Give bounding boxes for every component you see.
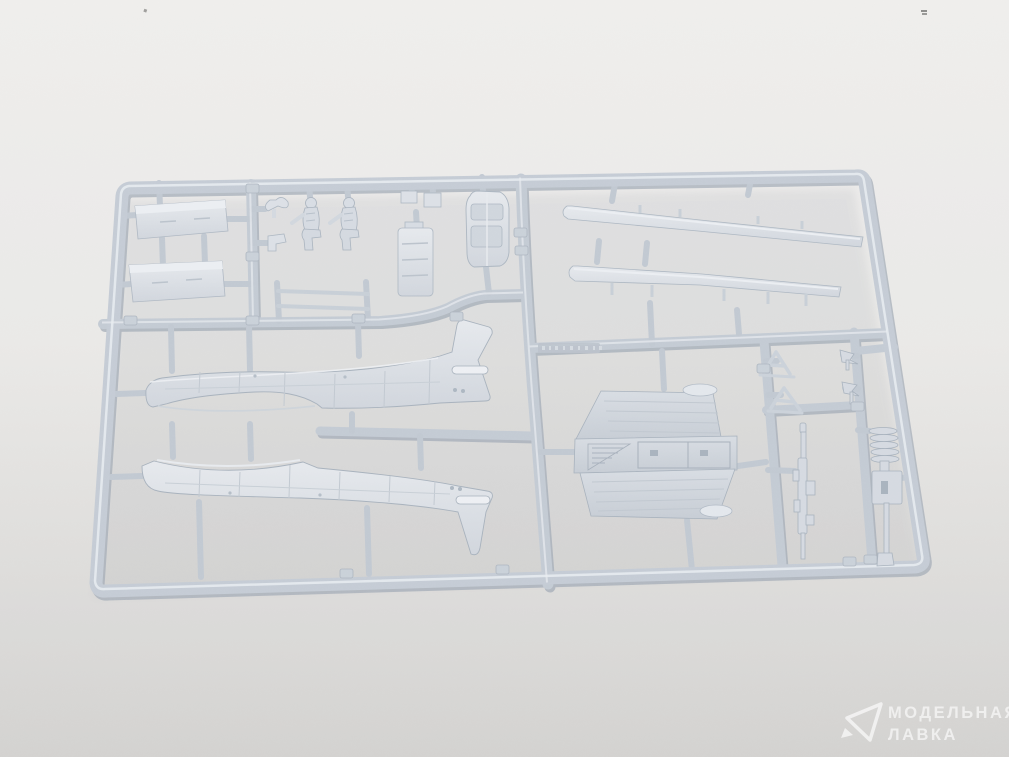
watermark-line1: МОДЕЛЬНАЯ	[888, 704, 1009, 722]
watermark-line2: ЛАВКА	[888, 726, 958, 744]
kit-sprue-photo: МОДЕЛЬНАЯ ЛАВКА	[0, 0, 1009, 757]
photo-scene: МОДЕЛЬНАЯ ЛАВКА	[0, 0, 1009, 757]
canopy-part	[466, 191, 509, 267]
stabilizer-panel-2	[129, 261, 225, 302]
wing-center-section	[574, 384, 737, 519]
molded-text-strip	[538, 343, 602, 353]
